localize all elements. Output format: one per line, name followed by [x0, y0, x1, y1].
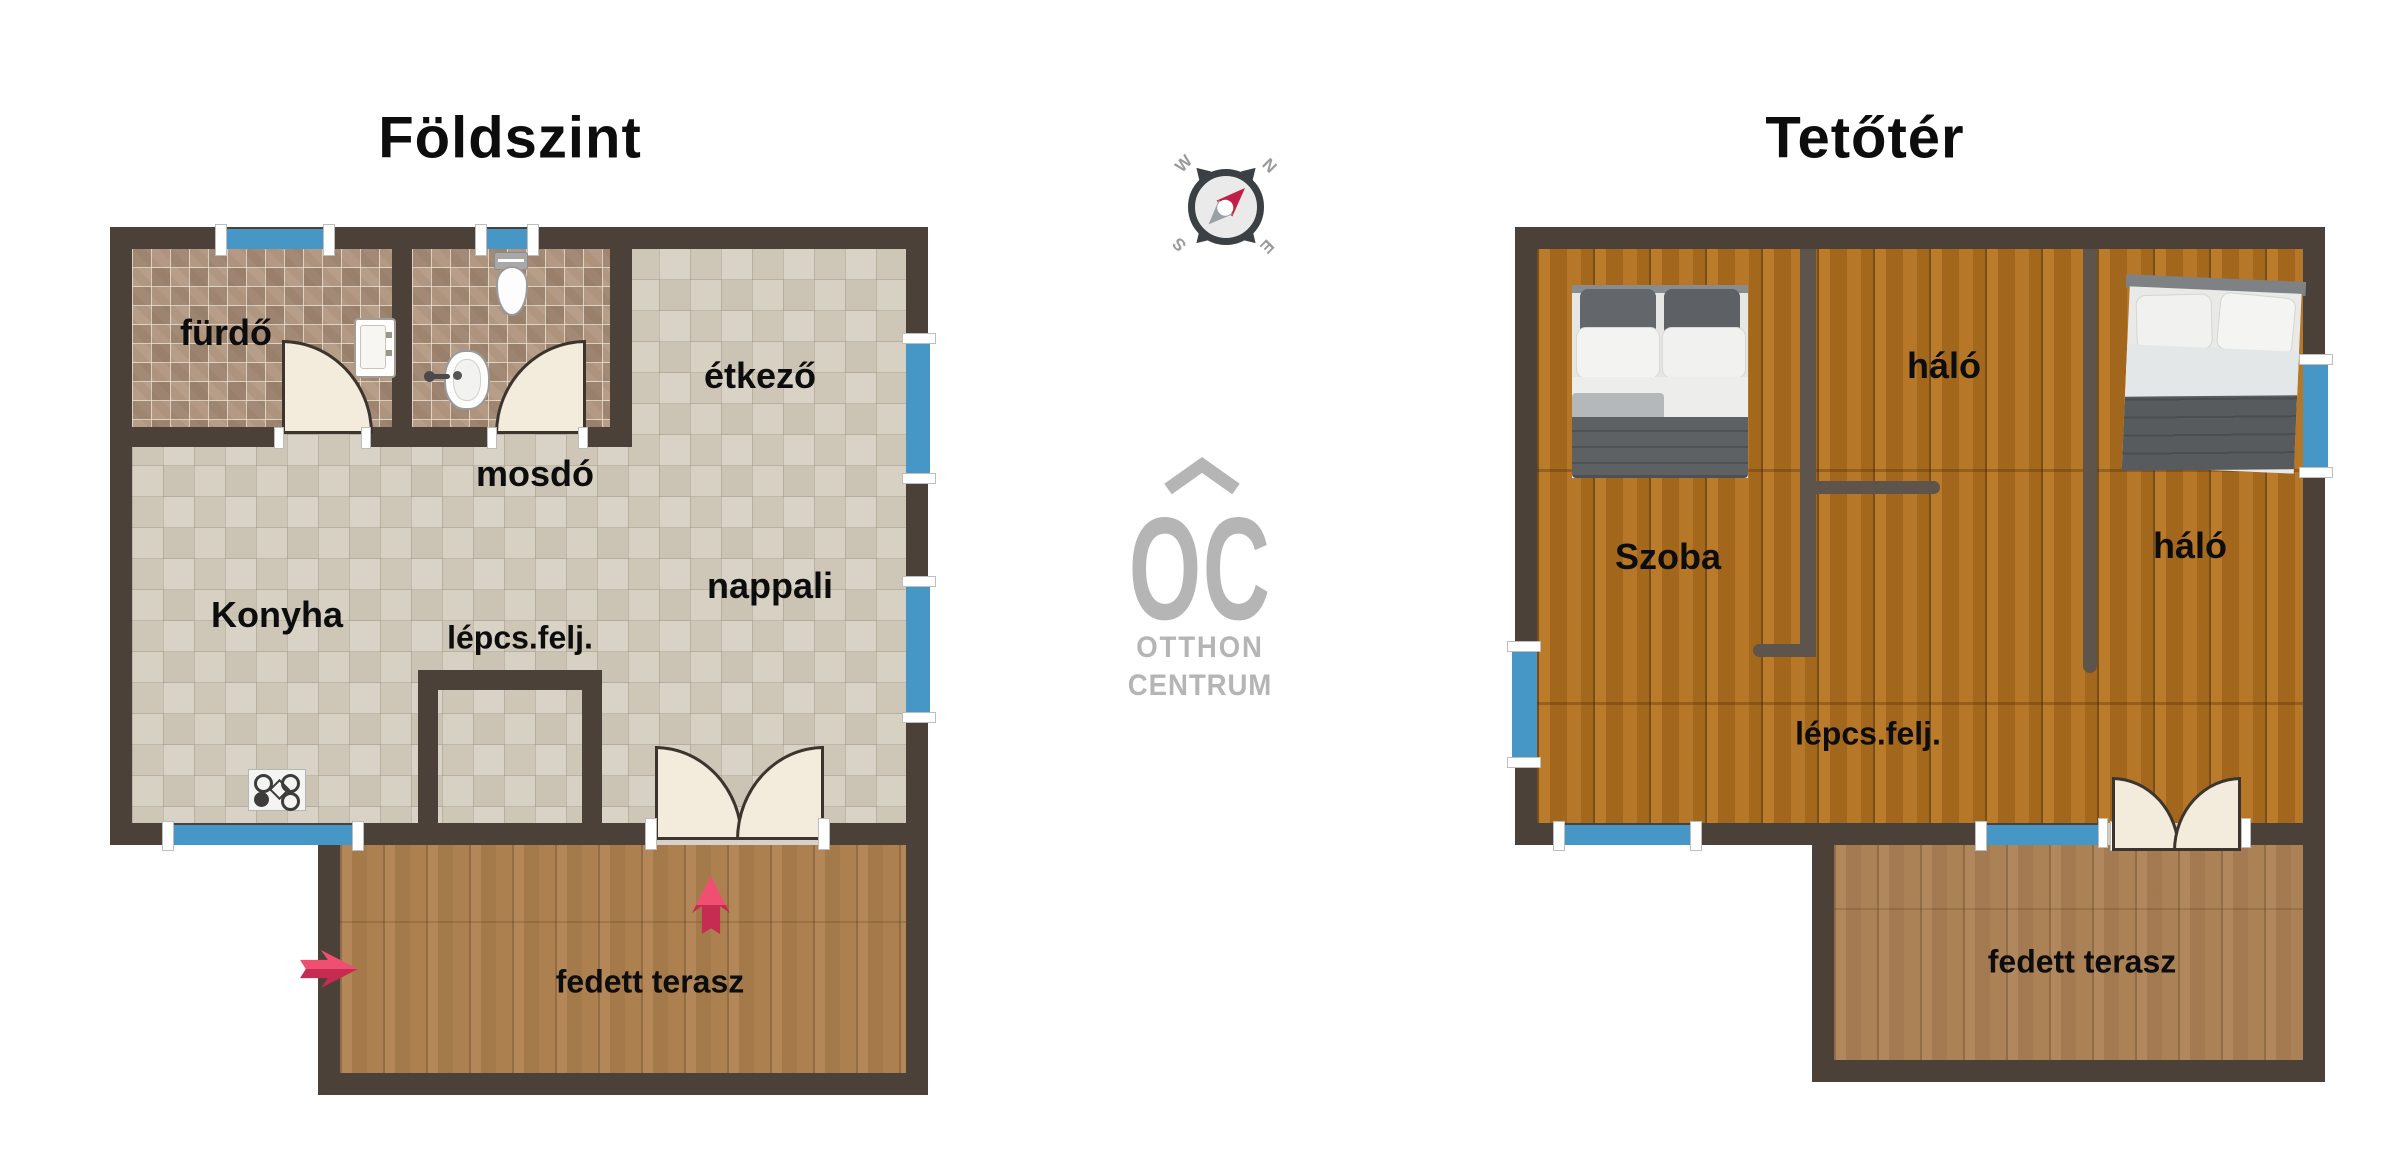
attic-window-bottom-1 [1563, 825, 1690, 845]
ground-floor-title: Földszint [378, 105, 642, 172]
room-label-attic-stairs: lépcs.felj. [1795, 716, 1941, 753]
window-dining [906, 342, 930, 473]
attic-terrace-wall-left [1812, 845, 1834, 1082]
door-jamb [2098, 818, 2108, 848]
stove [248, 769, 306, 811]
floorplan-canvas: Földszint [0, 0, 2400, 1160]
window-cap [323, 224, 335, 256]
room-label-terrace-ground: fedett terasz [556, 964, 745, 1001]
bed-szoba [1572, 285, 1748, 478]
wc-sink-drain [453, 371, 462, 380]
room-label-bathroom: fürdő [180, 312, 272, 354]
window-kitchen [172, 825, 352, 845]
stairwell-wall-top [418, 670, 602, 690]
logo-monogram: OC [1129, 496, 1272, 642]
window-cap [902, 576, 936, 587]
door-jamb [2241, 818, 2251, 848]
attic-window-bottom-2 [1985, 825, 2110, 845]
window-bathroom [225, 229, 323, 249]
attic-terrace-wall-right [2303, 845, 2325, 1082]
attic-partition-szoba [1800, 249, 1816, 657]
door-jamb [645, 818, 657, 850]
window-cap [902, 712, 936, 723]
bathroom-sink [354, 318, 396, 378]
door-jamb [818, 818, 830, 850]
attic-window-right [2303, 363, 2328, 467]
door-jamb [361, 427, 371, 449]
attic-window-left [1512, 650, 1537, 757]
logo-name-line1: OTTHON [1136, 631, 1264, 665]
attic-wall-right [2303, 249, 2325, 845]
window-cap [902, 333, 936, 344]
stairwell-wall-left [418, 690, 438, 823]
room-label-stairs: lépcs.felj. [447, 620, 593, 657]
room-label-kitchen: Konyha [211, 594, 343, 636]
wall-left [110, 249, 132, 845]
attic-partition-stub [1753, 644, 1816, 657]
window-cap [527, 224, 539, 256]
compass-letter-n: N [1258, 155, 1281, 178]
room-label-living: nappali [707, 565, 833, 607]
room-label-terrace-attic: fedett terasz [1988, 944, 2177, 981]
window-cap [1690, 821, 1702, 851]
ground-terrace-wall-bottom [318, 1073, 928, 1095]
window-cap [2299, 467, 2333, 478]
door-jamb [578, 427, 588, 449]
wc-sink-faucet [430, 374, 450, 379]
window-cap [2299, 354, 2333, 365]
window-wc [485, 229, 527, 249]
ground-terrace-floor [340, 845, 906, 1073]
window-cap [1553, 821, 1565, 851]
compass-letter-s: S [1169, 233, 1191, 255]
wc-sink [444, 350, 490, 410]
door-jamb [487, 427, 497, 449]
attic-wall-top [1515, 227, 2325, 249]
bed-bedroom-right [2122, 274, 2302, 473]
room-label-bedroom-center: háló [1907, 345, 1981, 387]
room-label-dining: étkező [704, 355, 816, 397]
wall-bottom-east [818, 823, 906, 845]
window-cap [475, 224, 487, 256]
window-living [906, 585, 930, 712]
room-label-szoba: Szoba [1615, 536, 1721, 578]
ground-terrace-wall-right [906, 845, 928, 1095]
window-cap [162, 821, 174, 851]
attic-title: Tetőtér [1765, 105, 1964, 172]
window-cap [902, 473, 936, 484]
attic-terrace-wall-bottom [1812, 1060, 2325, 1082]
wall-wc-right [610, 249, 632, 447]
window-cap [1975, 821, 1987, 851]
wall-under-bath-2 [367, 427, 495, 447]
window-cap [1507, 641, 1541, 652]
logo-name-line2: CENTRUM [1128, 669, 1272, 703]
window-cap [1507, 757, 1541, 768]
window-cap [215, 224, 227, 256]
compass-letter-e: E [1256, 235, 1278, 257]
stairwell-wall-right [582, 690, 602, 823]
wall-under-bath-1 [132, 427, 282, 447]
room-label-bedroom-right: háló [2153, 525, 2227, 567]
attic-partition-bedroom [2083, 249, 2097, 673]
door-jamb [274, 427, 284, 449]
attic-partition-stairs [1816, 481, 1940, 494]
compass-letter-w: W [1171, 151, 1196, 176]
window-cap [352, 821, 364, 851]
room-label-wc: mosdó [476, 453, 594, 495]
